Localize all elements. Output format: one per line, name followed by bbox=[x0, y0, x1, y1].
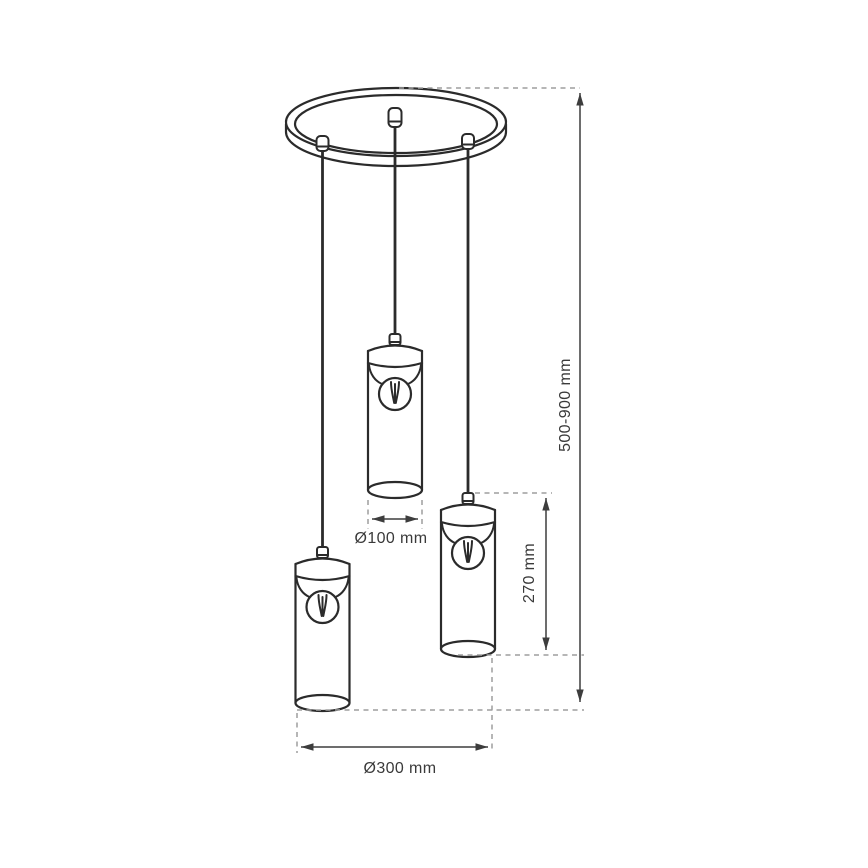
drop-height-label: 500-900 mm bbox=[557, 358, 574, 452]
shade-cap-rim bbox=[368, 363, 422, 367]
drawing-svg: 500-900 mm 270 mm Ø100 mm Ø300 mm bbox=[0, 0, 868, 868]
shade-cap-rim bbox=[441, 522, 495, 526]
shade-cap-top bbox=[296, 559, 350, 565]
cord-grip-left bbox=[317, 136, 329, 151]
shade-side-walls bbox=[368, 351, 422, 490]
extension-lines bbox=[368, 500, 422, 529]
shade-side-walls bbox=[296, 564, 350, 703]
shade-height-label: 270 mm bbox=[521, 543, 538, 603]
cord-grip-middle bbox=[389, 108, 402, 127]
shade-bottom-opening bbox=[296, 695, 350, 711]
lamp-dimension-drawing: 500-900 mm 270 mm Ø100 mm Ø300 mm bbox=[0, 0, 868, 868]
shade-cap-rim bbox=[296, 576, 350, 580]
dimension-shade-height: 270 mm bbox=[458, 493, 584, 655]
cord-grip-right bbox=[462, 134, 474, 149]
shade-cap-top bbox=[441, 505, 495, 511]
cord-connector-icon bbox=[390, 334, 401, 345]
cord-connector-icon bbox=[317, 547, 328, 558]
shade-side-walls bbox=[441, 510, 495, 649]
extension-lines bbox=[297, 658, 492, 753]
pendant-middle bbox=[368, 334, 422, 498]
shade-cap-top bbox=[368, 346, 422, 352]
shade-bottom-opening bbox=[368, 482, 422, 498]
pendant-left bbox=[296, 547, 350, 711]
canopy-diameter-label: Ø300 mm bbox=[363, 760, 436, 777]
pendant-right bbox=[441, 493, 495, 657]
dimension-canopy-diameter: Ø300 mm bbox=[297, 658, 492, 777]
fixture bbox=[286, 88, 506, 711]
shade-diameter-label: Ø100 mm bbox=[354, 530, 427, 547]
cord-connector-icon bbox=[463, 493, 474, 504]
dimension-shade-diameter: Ø100 mm bbox=[354, 500, 427, 547]
